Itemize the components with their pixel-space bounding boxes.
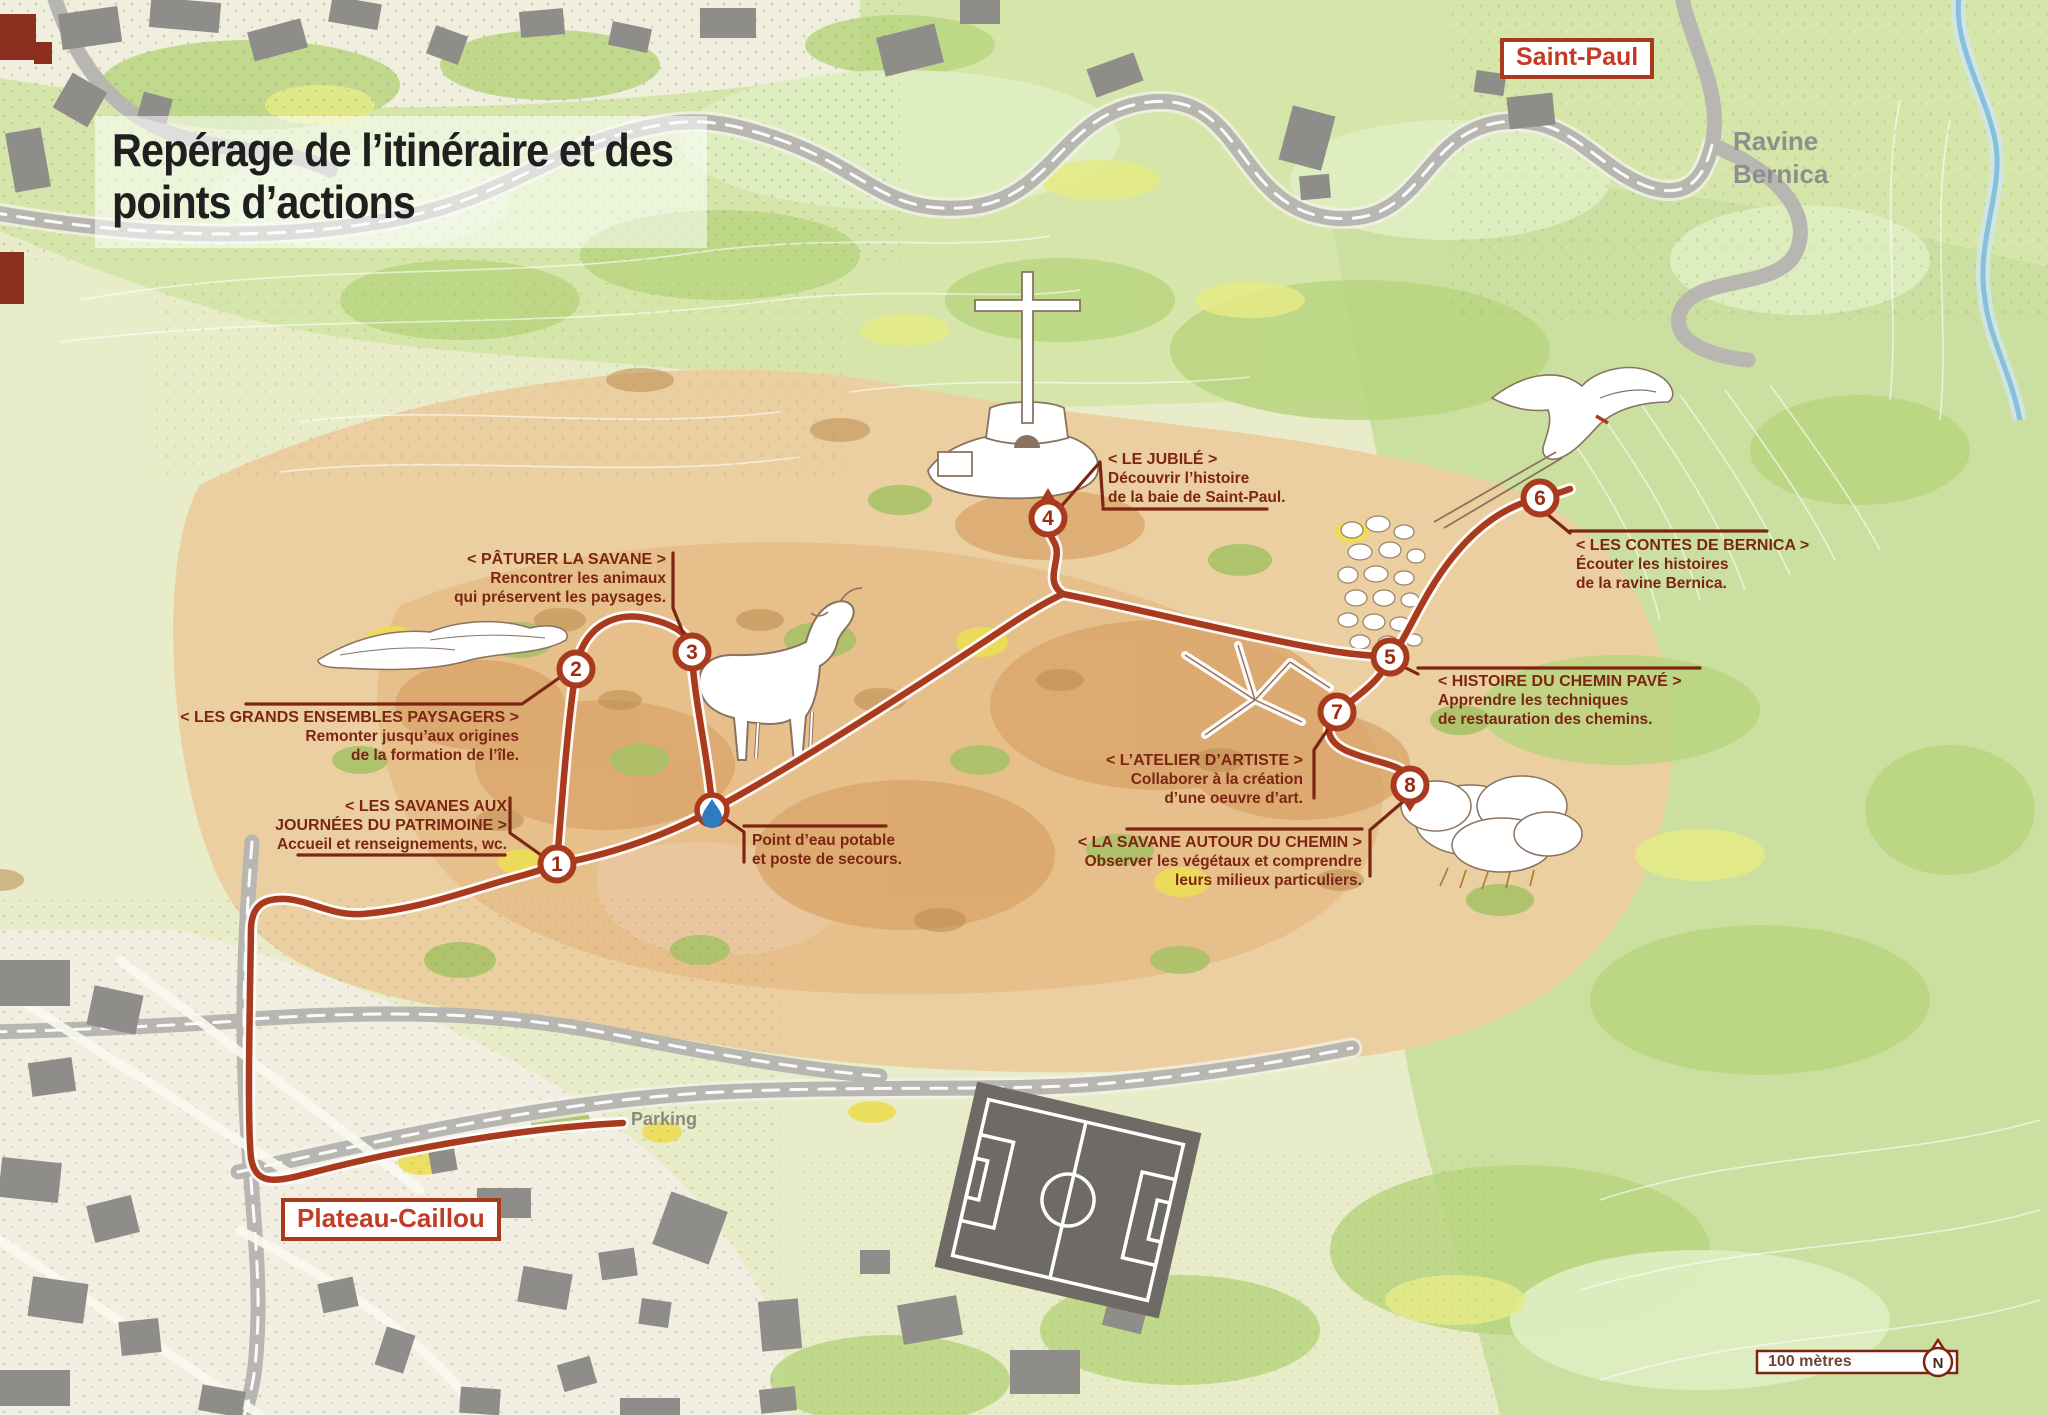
callout-heading: < LES SAVANES AUX [275, 797, 507, 816]
callout-body: Remonter jusqu’aux origines [180, 727, 519, 746]
map-title: Repérage de l’itinéraire et des points d… [112, 124, 673, 228]
marker-number: 1 [551, 853, 563, 876]
callout-body: Découvrir l’histoire [1108, 469, 1285, 488]
trail-marker-6: 6 [1524, 482, 1557, 515]
callout-body: Observer les végétaux et comprendre [1078, 852, 1362, 871]
ravine-line-2: Bernica [1733, 158, 1828, 191]
callout-heading: < LA SAVANE AUTOUR DU CHEMIN > [1078, 833, 1362, 852]
marker-number: 8 [1404, 774, 1416, 797]
title-line-1: Repérage de l’itinéraire et des [112, 124, 673, 176]
place-label-plateau-caillou: Plateau-Caillou [281, 1198, 501, 1241]
trail-marker-7: 7 [1321, 696, 1354, 729]
callout-body: de la baie de Saint-Paul. [1108, 488, 1285, 507]
callout-body: et poste de secours. [752, 850, 902, 869]
callout-grands-ensembles: < LES GRANDS ENSEMBLES PAYSAGERS > Remon… [180, 708, 519, 765]
callout-heading: < LES CONTES DE BERNICA > [1576, 536, 1809, 555]
callout-paturer-savane: < PÂTURER LA SAVANE > Rencontrer les ani… [454, 550, 666, 607]
callout-heading: < LES GRANDS ENSEMBLES PAYSAGERS > [180, 708, 519, 727]
north-letter: N [1933, 1355, 1944, 1372]
callout-body: Écouter les histoires [1576, 555, 1809, 574]
marker-number: 2 [570, 658, 582, 681]
callout-body: Apprendre les techniques [1438, 691, 1682, 710]
callout-contes-bernica: < LES CONTES DE BERNICA > Écouter les hi… [1576, 536, 1809, 593]
callout-body: de la formation de l’île. [180, 746, 519, 765]
place-label-saint-paul: Saint-Paul [1500, 38, 1654, 79]
callout-body: qui préservent les paysages. [454, 588, 666, 607]
callout-body: Accueil et renseignements, wc. [275, 835, 507, 854]
callout-heading: < LE JUBILÉ > [1108, 450, 1285, 469]
marker-number: 3 [686, 641, 698, 664]
callout-body: d’une oeuvre d’art. [1106, 789, 1303, 808]
callout-heading: < HISTOIRE DU CHEMIN PAVÉ > [1438, 672, 1682, 691]
callout-heading: JOURNÉES DU PATRIMOINE > [275, 816, 507, 835]
callout-chemin-pave: < HISTOIRE DU CHEMIN PAVÉ > Apprendre le… [1438, 672, 1682, 729]
trail-marker-1: 1 [541, 848, 574, 881]
marker-number: 4 [1042, 507, 1054, 530]
trail-marker-5: 5 [1374, 641, 1407, 674]
callout-heading: < PÂTURER LA SAVANE > [454, 550, 666, 569]
ravine-line-1: Ravine [1733, 125, 1828, 158]
callout-savanes-patrimoine: < LES SAVANES AUX JOURNÉES DU PATRIMOINE… [275, 797, 507, 854]
place-label-ravine-bernica: Ravine Bernica [1733, 125, 1828, 191]
callout-body: de restauration des chemins. [1438, 710, 1682, 729]
marker-number: 7 [1331, 701, 1343, 724]
water-point-marker [697, 795, 727, 828]
parking-label: Parking [631, 1109, 697, 1130]
callout-heading: < L’ATELIER D’ARTISTE > [1106, 751, 1303, 770]
marker-number: 5 [1384, 646, 1396, 669]
callout-atelier-artiste: < L’ATELIER D’ARTISTE > Collaborer à la … [1106, 751, 1303, 808]
trail-marker-3: 3 [676, 636, 709, 669]
callout-savane-chemin: < LA SAVANE AUTOUR DU CHEMIN > Observer … [1078, 833, 1362, 890]
callout-jubile: < LE JUBILÉ > Découvrir l’histoire de la… [1108, 450, 1285, 507]
scale-bar-label: 100 mètres [1768, 1353, 1852, 1371]
title-line-2: points d’actions [112, 176, 673, 228]
callout-body: de la ravine Bernica. [1576, 574, 1809, 593]
callout-point-eau: Point d’eau potable et poste de secours. [752, 831, 902, 869]
trail-map: 1 2 3 4 5 6 7 8 [0, 0, 2048, 1415]
callout-body: Collaborer à la création [1106, 770, 1303, 789]
trail-marker-2: 2 [560, 653, 593, 686]
callout-body: Rencontrer les animaux [454, 569, 666, 588]
callout-body: leurs milieux particuliers. [1078, 871, 1362, 890]
callout-body: Point d’eau potable [752, 831, 902, 850]
marker-number: 6 [1534, 487, 1546, 510]
